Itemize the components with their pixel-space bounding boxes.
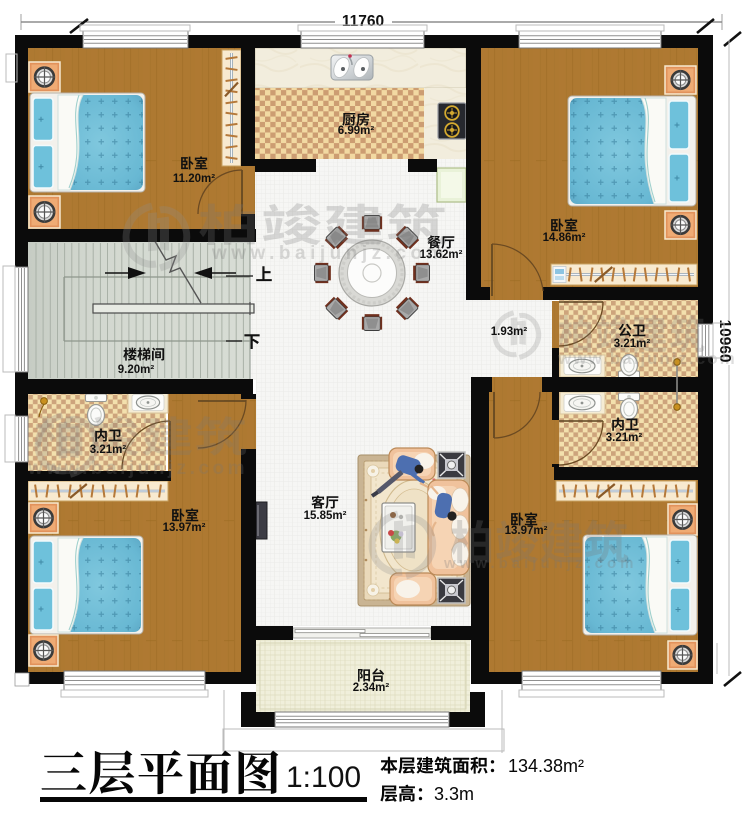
svg-text:13.62m²: 13.62m²	[420, 249, 463, 261]
svg-text:2.34m²: 2.34m²	[353, 682, 390, 694]
svg-text:9.20m²: 9.20m²	[118, 364, 155, 376]
svg-text:1.93m²: 1.93m²	[491, 326, 528, 338]
svg-text:3.21m²: 3.21m²	[90, 444, 127, 456]
svg-text:www.baijunjz.com: www.baijunjz.com	[443, 555, 637, 572]
svg-text:11760: 11760	[342, 13, 384, 30]
svg-text:www.baijunjz.com: www.baijunjz.com	[27, 458, 248, 479]
svg-text:11.20m²: 11.20m²	[173, 173, 215, 185]
svg-text:13.97m²: 13.97m²	[163, 522, 206, 534]
svg-text:134.38m²: 134.38m²	[508, 756, 584, 776]
svg-text:www.baijunjz.com: www.baijunjz.com	[211, 243, 448, 264]
svg-text:15.85m²: 15.85m²	[304, 510, 347, 522]
svg-text:14.86m²: 14.86m²	[543, 232, 586, 244]
svg-text:1:100: 1:100	[286, 761, 361, 794]
svg-text:3.3m: 3.3m	[434, 784, 474, 804]
svg-text:13.97m²: 13.97m²	[505, 525, 548, 537]
svg-text:3.21m²: 3.21m²	[606, 432, 643, 444]
svg-text:3.21m²: 3.21m²	[614, 338, 651, 350]
svg-text:6.99m²: 6.99m²	[338, 125, 375, 137]
svg-text:www.baijunjz.com: www.baijunjz.com	[557, 349, 737, 368]
